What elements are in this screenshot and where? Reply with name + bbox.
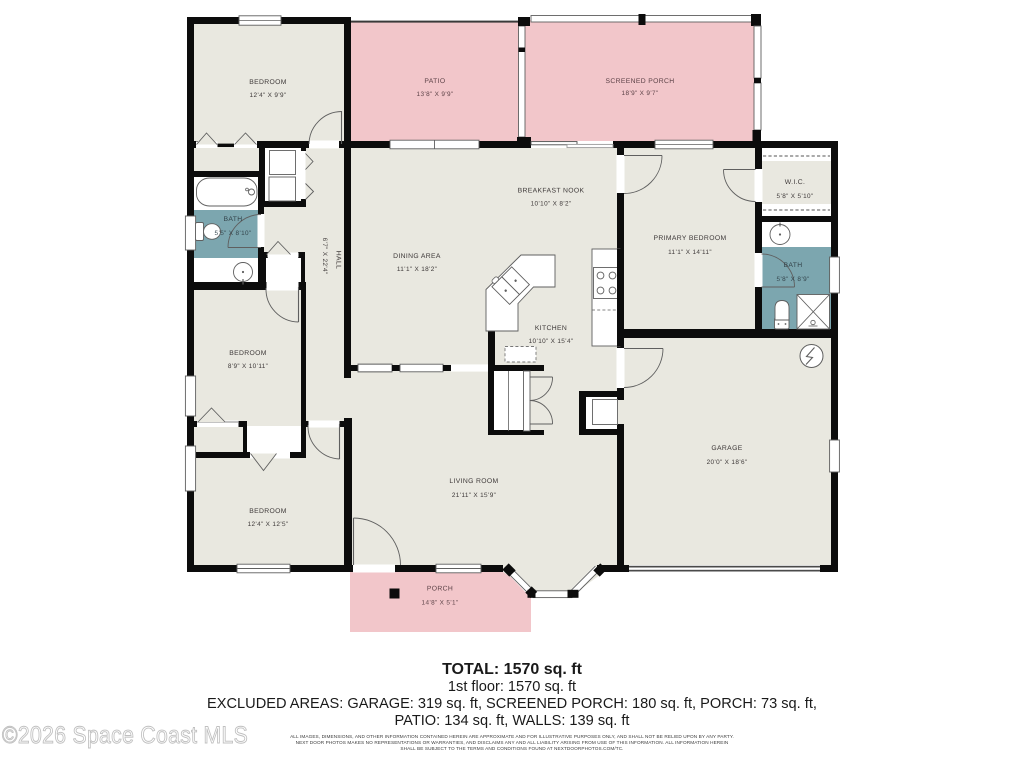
svg-text:5’8” X 8’9”: 5’8” X 8’9” [777,276,810,283]
svg-text:10’10” X 15’4”: 10’10” X 15’4” [529,338,574,345]
svg-text:11’1” X 14’11”: 11’1” X 14’11” [668,249,712,256]
svg-text:14’8” X 5’1”: 14’8” X 5’1” [422,600,459,607]
svg-text:12’4” X 9’9”: 12’4” X 9’9” [250,92,287,99]
svg-text:12’4” X 12’5”: 12’4” X 12’5” [248,521,289,528]
svg-text:10’10” X 8’2”: 10’10” X 8’2” [531,201,572,208]
svg-text:BATH: BATH [783,262,802,269]
svg-text:PATIO: PATIO [424,78,445,85]
svg-text:KITCHEN: KITCHEN [535,325,567,332]
svg-text:13’8” X 9’9”: 13’8” X 9’9” [417,91,454,98]
svg-text:SCREENED PORCH: SCREENED PORCH [605,78,674,85]
svg-text:6’7” X 22’4”: 6’7” X 22’4” [321,238,328,275]
svg-text:GARAGE: GARAGE [711,445,742,452]
svg-text:20’0” X 18’6”: 20’0” X 18’6” [707,459,748,466]
svg-text:PORCH: PORCH [427,586,453,593]
svg-text:W.I.C.: W.I.C. [785,179,806,186]
svg-text:21’11” X 15’9”: 21’11” X 15’9” [452,492,496,499]
svg-text:5’5” X 8’10”: 5’5” X 8’10” [215,230,252,237]
svg-text:8’9” X 10’11”: 8’9” X 10’11” [228,363,268,370]
svg-text:BATH: BATH [223,216,242,223]
svg-text:DINING AREA: DINING AREA [393,253,441,260]
svg-text:11’1” X 18’2”: 11’1” X 18’2” [397,266,437,273]
svg-text:5’8” X 5’10”: 5’8” X 5’10” [777,193,814,200]
svg-text:HALL: HALL [335,251,342,269]
svg-text:PRIMARY BEDROOM: PRIMARY BEDROOM [654,235,727,242]
svg-text:18’9” X 9’7”: 18’9” X 9’7” [622,90,659,97]
svg-text:BEDROOM: BEDROOM [249,79,287,86]
svg-text:BEDROOM: BEDROOM [229,350,267,357]
svg-text:BREAKFAST NOOK: BREAKFAST NOOK [518,188,585,195]
svg-text:LIVING ROOM: LIVING ROOM [449,478,498,485]
svg-text:BEDROOM: BEDROOM [249,508,287,515]
